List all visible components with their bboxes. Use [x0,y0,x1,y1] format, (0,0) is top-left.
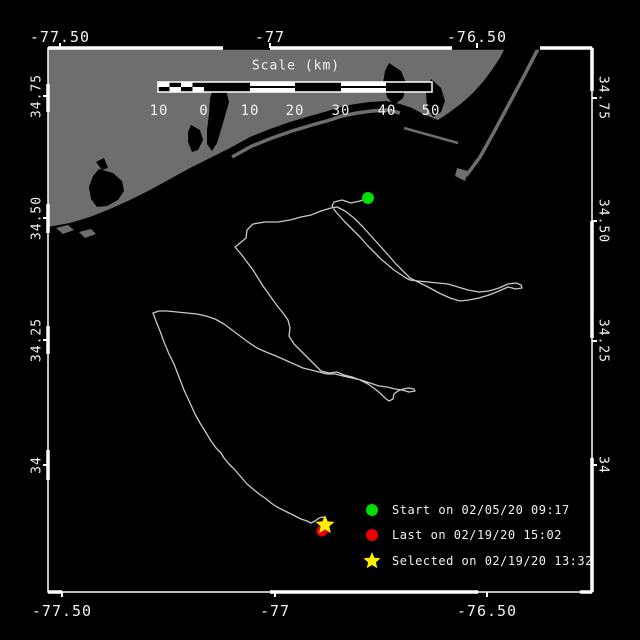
scale-num-1: 0 [199,103,208,119]
start-marker[interactable] [362,192,374,204]
lon-label-bottom-2: -76.50 [457,602,517,620]
cape-lookout-tip [455,168,468,181]
scale-bar [158,82,432,92]
scale-segment-solid [204,82,250,92]
lat-label-left-0: 34.75 [30,74,45,118]
lat-label-right-0: 34.75 [596,76,611,120]
lat-label-left-2: 34.25 [30,318,45,362]
scale-num-6: 50 [422,103,441,119]
lat-label-left-3: 34 [30,456,45,474]
legend-label-last: Last on 02/19/20 15:02 [392,528,562,542]
lat-label-left-1: 34.50 [30,196,45,240]
lon-label-top-2: -76.50 [447,28,507,46]
legend-label-selected: Selected on 02/19/20 13:32 [392,554,593,568]
scale-num-5: 40 [378,103,397,119]
lon-label-bottom-0: -77.50 [32,602,92,620]
legend-marker-0[interactable] [366,504,378,516]
scale-segment-solid [295,82,341,92]
small-island-0 [56,225,74,234]
scale-num-2: 10 [241,103,260,119]
map-content-layer [48,47,539,537]
map-plot-area[interactable] [0,0,640,640]
scale-segment-solid [386,82,432,92]
lat-label-right-3: 34 [596,456,611,474]
scale-num-0: 10 [150,103,169,119]
small-island-1 [79,229,96,238]
scale-bar-title: Scale (km) [252,59,340,74]
legend-marker-2[interactable] [363,552,380,568]
lon-label-bottom-1: -77 [260,602,290,620]
drifter-map-canvas: -77.50 -77 -76.50 -77.50 -77 -76.50 34.7… [0,0,640,640]
legend-marker-1[interactable] [366,529,378,541]
scale-num-4: 30 [332,103,351,119]
scale-num-3: 20 [286,103,305,119]
lon-label-top-1: -77 [255,28,285,46]
legend-label-start: Start on 02/05/20 09:17 [392,503,570,517]
drifter-track-line[interactable] [153,198,522,526]
lat-label-right-2: 34.25 [596,319,611,363]
lon-label-top-0: -77.50 [30,28,90,46]
lat-label-right-1: 34.50 [596,199,611,243]
